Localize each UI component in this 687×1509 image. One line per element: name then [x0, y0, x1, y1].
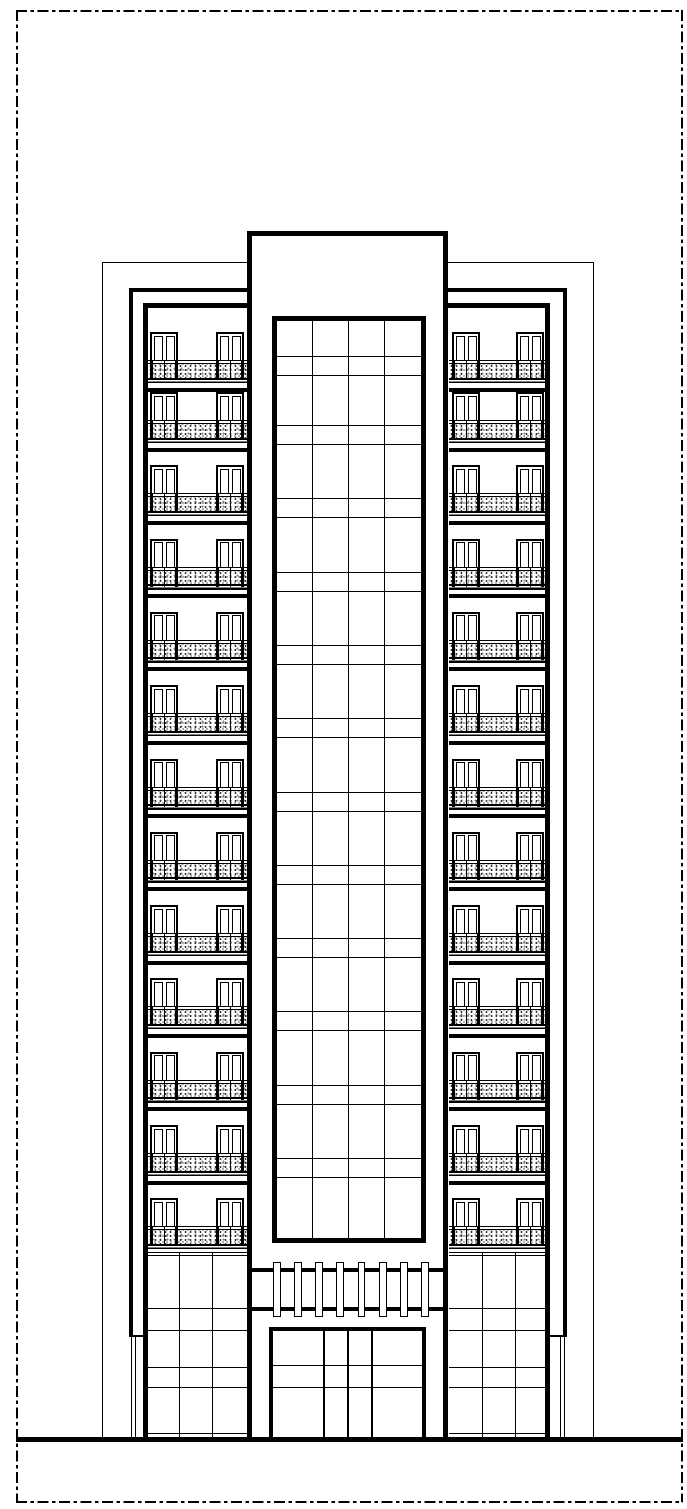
railing-post-thin: [466, 640, 467, 660]
railing-post-thin: [530, 787, 531, 807]
railing-post-bold: [452, 1080, 455, 1100]
railing-post-bold: [541, 787, 544, 807]
railing-post-bold: [150, 860, 153, 880]
railing-bottom-rail: [449, 1097, 545, 1103]
railing-post-bold: [150, 567, 153, 587]
floor-slab-line: [148, 741, 247, 745]
railing-post-bold: [452, 860, 455, 880]
railing-post-bold: [452, 1006, 455, 1026]
floor-row: [148, 612, 247, 674]
floor-slab-line: [449, 1034, 545, 1038]
railing-post-bold: [477, 360, 480, 380]
balcony-railing: [449, 1153, 545, 1176]
railing-post-thin: [164, 493, 165, 513]
railing-post-thin: [164, 1226, 165, 1246]
railing-post-bold: [175, 787, 178, 807]
railing-post-bold: [175, 1006, 178, 1026]
railing-stipple-panel: [449, 791, 545, 805]
railing-bottom-rail: [449, 1024, 545, 1030]
podium-horizontal-line: [449, 1367, 545, 1368]
right-wing: [449, 0, 545, 1509]
railing-post-bold: [516, 567, 519, 587]
railing-post-bold: [175, 360, 178, 380]
railing-post-bold: [541, 933, 544, 953]
railing-post-bold: [241, 713, 244, 733]
railing-post-thin: [466, 1226, 467, 1246]
railing-post-thin: [530, 1226, 531, 1246]
podium-vertical-line: [482, 1252, 483, 1437]
railing-post-bold: [150, 1226, 153, 1246]
colonnade-post: [273, 1262, 281, 1317]
left-wall-extension: [131, 1337, 136, 1437]
railing-post-bold: [477, 420, 480, 440]
railing-post-bold: [175, 567, 178, 587]
railing-post-bold: [241, 1080, 244, 1100]
railing-post-bold: [541, 420, 544, 440]
curtain-spandrel-band: [277, 1158, 421, 1178]
railing-post-bold: [241, 640, 244, 660]
railing-post-thin: [164, 787, 165, 807]
curtain-spandrel-band: [277, 572, 421, 592]
railing-post-bold: [150, 1080, 153, 1100]
floor-slab-line: [148, 1181, 247, 1185]
railing-post-thin: [466, 1080, 467, 1100]
railing-post-bold: [452, 1153, 455, 1173]
railing-post-bold: [216, 640, 219, 660]
balcony-railing: [148, 713, 247, 736]
floor-slab-line: [148, 521, 247, 525]
railing-bottom-rail: [449, 1171, 545, 1177]
podium-horizontal-line: [148, 1252, 247, 1253]
railing-post-bold: [216, 1006, 219, 1026]
railing-post-thin: [466, 360, 467, 380]
floor-slab-line: [449, 741, 545, 745]
floor-slab-line: [148, 814, 247, 818]
railing-post-thin: [230, 1153, 231, 1173]
railing-post-bold: [516, 933, 519, 953]
podium-horizontal-line: [449, 1387, 545, 1388]
railing-post-bold: [477, 933, 480, 953]
podium-horizontal-line: [449, 1252, 545, 1253]
railing-post-thin: [164, 1006, 165, 1026]
colonnade-post: [400, 1262, 408, 1317]
railing-post-thin: [164, 1080, 165, 1100]
railing-post-bold: [150, 1006, 153, 1026]
railing-post-thin: [230, 933, 231, 953]
railing-post-bold: [175, 860, 178, 880]
railing-post-bold: [516, 1006, 519, 1026]
railing-stipple-panel: [449, 644, 545, 658]
railing-post-thin: [530, 713, 531, 733]
railing-post-thin: [530, 1080, 531, 1100]
podium-horizontal-line: [449, 1255, 545, 1256]
floor-row: [449, 539, 545, 601]
curtain-spandrel-band: [277, 498, 421, 518]
curtain-wall: [272, 316, 426, 1244]
railing-post-bold: [216, 360, 219, 380]
railing-post-bold: [216, 713, 219, 733]
railing-post-thin: [230, 420, 231, 440]
railing-post-thin: [230, 567, 231, 587]
railing-post-thin: [466, 1006, 467, 1026]
balcony-railing: [449, 567, 545, 590]
railing-post-thin: [164, 1153, 165, 1173]
podium-horizontal-line: [148, 1330, 247, 1331]
floor-row: [148, 465, 247, 527]
curtain-spandrel-band: [277, 938, 421, 958]
floor-slab-line: [148, 1034, 247, 1038]
balcony-railing: [148, 1006, 247, 1029]
porch-upper-beam: [252, 1268, 444, 1272]
podium-horizontal-line: [148, 1255, 247, 1256]
railing-post-bold: [241, 1006, 244, 1026]
railing-post-thin: [530, 1006, 531, 1026]
railing-post-thin: [530, 360, 531, 380]
floor-slab-line: [148, 1107, 247, 1111]
balcony-railing: [148, 1080, 247, 1103]
railing-post-bold: [452, 640, 455, 660]
railing-post-bold: [477, 860, 480, 880]
railing-stipple-panel: [449, 364, 545, 378]
podium-vertical-line: [212, 1252, 213, 1437]
floor-slab-line: [449, 388, 545, 392]
balcony-railing: [449, 860, 545, 883]
door-transom: [273, 1387, 422, 1388]
balcony-railing: [449, 713, 545, 736]
railing-post-bold: [541, 360, 544, 380]
railing-post-bold: [477, 1226, 480, 1246]
railing-post-thin: [164, 567, 165, 587]
left-wing: [148, 0, 247, 1509]
railing-post-bold: [241, 493, 244, 513]
railing-post-bold: [516, 1153, 519, 1173]
floor-row: [148, 905, 247, 967]
balcony-railing: [148, 1226, 247, 1249]
railing-bottom-rail: [449, 951, 545, 957]
railing-post-thin: [164, 713, 165, 733]
railing-post-bold: [541, 1153, 544, 1173]
balcony-railing: [148, 567, 247, 590]
railing-stipple-panel: [449, 864, 545, 878]
railing-post-bold: [216, 493, 219, 513]
railing-post-bold: [477, 1153, 480, 1173]
balcony-railing: [449, 933, 545, 956]
railing-post-thin: [530, 567, 531, 587]
railing-post-thin: [530, 420, 531, 440]
railing-post-bold: [150, 1153, 153, 1173]
railing-post-thin: [230, 713, 231, 733]
railing-post-bold: [516, 787, 519, 807]
floor-row: [148, 1125, 247, 1187]
curtain-spandrel-band: [277, 792, 421, 812]
railing-post-bold: [175, 1153, 178, 1173]
podium-horizontal-line: [449, 1308, 545, 1309]
floor-row: [449, 759, 545, 821]
railing-post-bold: [452, 713, 455, 733]
floor-row: [449, 1198, 545, 1260]
railing-stipple-panel: [449, 1157, 545, 1171]
railing-post-bold: [216, 860, 219, 880]
railing-post-thin: [466, 1153, 467, 1173]
railing-stipple-panel: [449, 424, 545, 438]
railing-post-bold: [150, 493, 153, 513]
floor-slab-line: [449, 1181, 545, 1185]
railing-post-bold: [452, 360, 455, 380]
railing-post-bold: [216, 567, 219, 587]
door-mullion: [323, 1331, 324, 1437]
railing-post-bold: [241, 860, 244, 880]
railing-post-bold: [241, 1153, 244, 1173]
railing-bottom-rail: [449, 511, 545, 517]
door-mullion: [371, 1331, 372, 1437]
floor-slab-line: [148, 887, 247, 891]
railing-stipple-panel: [449, 717, 545, 731]
floor-row: [148, 539, 247, 601]
balcony-railing: [148, 860, 247, 883]
railing-post-thin: [164, 933, 165, 953]
podium-horizontal-line: [148, 1387, 247, 1388]
balcony-railing: [449, 360, 545, 383]
colonnade-post: [336, 1262, 344, 1317]
railing-post-bold: [541, 640, 544, 660]
railing-stipple-panel: [449, 1084, 545, 1098]
railing-post-bold: [477, 640, 480, 660]
balcony-railing: [148, 787, 247, 810]
railing-bottom-rail: [449, 877, 545, 883]
floor-slab-line: [148, 388, 247, 392]
railing-post-bold: [516, 420, 519, 440]
balcony-railing: [148, 640, 247, 663]
balcony-railing: [148, 1153, 247, 1176]
railing-post-bold: [150, 713, 153, 733]
railing-post-bold: [241, 420, 244, 440]
railing-post-bold: [541, 860, 544, 880]
railing-post-bold: [175, 1226, 178, 1246]
floor-slab-line: [449, 448, 545, 452]
podium-vertical-line: [179, 1252, 180, 1437]
podium-horizontal-line: [148, 1367, 247, 1368]
railing-stipple-panel: [449, 1230, 545, 1244]
balcony-railing: [449, 493, 545, 516]
floor-row: [449, 1125, 545, 1187]
balcony-railing: [449, 1226, 545, 1249]
railing-post-thin: [466, 713, 467, 733]
railing-bottom-rail: [449, 584, 545, 590]
railing-post-bold: [241, 1226, 244, 1246]
floor-row: [449, 392, 545, 454]
podium-horizontal-line: [148, 1433, 247, 1434]
floor-row: [148, 759, 247, 821]
railing-post-thin: [466, 860, 467, 880]
railing-stipple-panel: [449, 571, 545, 585]
railing-post-bold: [175, 933, 178, 953]
railing-post-thin: [164, 420, 165, 440]
railing-post-thin: [230, 1080, 231, 1100]
floor-row: [449, 978, 545, 1040]
floor-row: [449, 685, 545, 747]
floor-row: [148, 332, 247, 394]
railing-post-thin: [164, 640, 165, 660]
railing-post-thin: [164, 360, 165, 380]
entrance-door: [269, 1327, 426, 1437]
railing-post-bold: [150, 933, 153, 953]
balcony-railing: [148, 933, 247, 956]
floor-row: [449, 332, 545, 394]
railing-post-bold: [452, 493, 455, 513]
railing-post-bold: [452, 787, 455, 807]
railing-post-bold: [452, 420, 455, 440]
balcony-railing: [449, 640, 545, 663]
railing-post-bold: [541, 1226, 544, 1246]
floor-slab-line: [148, 594, 247, 598]
railing-post-bold: [477, 713, 480, 733]
railing-post-bold: [477, 567, 480, 587]
railing-post-thin: [230, 1226, 231, 1246]
floor-slab-line: [449, 1107, 545, 1111]
railing-post-bold: [477, 493, 480, 513]
railing-post-bold: [541, 493, 544, 513]
railing-post-thin: [530, 860, 531, 880]
railing-post-bold: [175, 493, 178, 513]
floor-slab-line: [148, 448, 247, 452]
railing-post-bold: [216, 1080, 219, 1100]
balcony-railing: [148, 493, 247, 516]
podium-horizontal-line: [148, 1308, 247, 1309]
railing-post-bold: [241, 567, 244, 587]
drawing-sheet: [0, 0, 687, 1509]
railing-post-thin: [530, 493, 531, 513]
floor-row: [148, 978, 247, 1040]
railing-post-bold: [541, 1006, 544, 1026]
railing-post-bold: [516, 713, 519, 733]
railing-post-bold: [150, 420, 153, 440]
railing-post-thin: [466, 493, 467, 513]
floor-row: [148, 685, 247, 747]
border-left: [16, 10, 18, 1502]
balcony-railing: [449, 1006, 545, 1029]
balcony-railing: [449, 420, 545, 443]
podium-horizontal-line: [449, 1433, 545, 1434]
curtain-spandrel-band: [277, 1011, 421, 1031]
floor-row: [449, 832, 545, 894]
railing-post-bold: [452, 567, 455, 587]
railing-post-bold: [541, 713, 544, 733]
ground-line: [16, 1437, 683, 1443]
curtain-spandrel-band: [277, 718, 421, 738]
railing-post-bold: [516, 640, 519, 660]
floor-row: [148, 832, 247, 894]
floor-row: [449, 612, 545, 674]
door-mullion: [347, 1331, 348, 1437]
floor-row: [449, 905, 545, 967]
right-wall-step-line: [548, 1335, 567, 1337]
curtain-spandrel-band: [277, 425, 421, 445]
railing-post-thin: [230, 860, 231, 880]
railing-post-bold: [150, 360, 153, 380]
railing-post-bold: [241, 360, 244, 380]
border-top: [16, 10, 683, 12]
railing-post-bold: [516, 1226, 519, 1246]
railing-bottom-rail: [449, 438, 545, 444]
floor-slab-line: [148, 961, 247, 965]
railing-post-bold: [175, 640, 178, 660]
border-right: [681, 10, 683, 1502]
railing-post-thin: [530, 640, 531, 660]
curtain-spandrel-band: [277, 1085, 421, 1105]
railing-post-bold: [516, 860, 519, 880]
balcony-railing: [449, 787, 545, 810]
podium-horizontal-line: [449, 1330, 545, 1331]
railing-bottom-rail: [449, 378, 545, 384]
railing-post-bold: [452, 933, 455, 953]
colonnade-post: [358, 1262, 366, 1317]
floor-row: [148, 1198, 247, 1260]
railing-post-thin: [466, 787, 467, 807]
right-wall-extension: [560, 1337, 565, 1437]
colonnade-post: [421, 1262, 429, 1317]
balcony-railing: [148, 360, 247, 383]
railing-post-bold: [175, 713, 178, 733]
railing-post-bold: [216, 420, 219, 440]
floor-row: [148, 1052, 247, 1114]
railing-post-thin: [164, 860, 165, 880]
railing-post-bold: [516, 1080, 519, 1100]
railing-post-bold: [452, 1226, 455, 1246]
railing-stipple-panel: [449, 937, 545, 951]
floor-slab-line: [449, 814, 545, 818]
floor-row: [449, 1052, 545, 1114]
floor-slab-line: [449, 594, 545, 598]
railing-bottom-rail: [449, 657, 545, 663]
railing-post-thin: [230, 640, 231, 660]
railing-bottom-rail: [449, 731, 545, 737]
railing-post-thin: [466, 933, 467, 953]
railing-post-bold: [477, 1080, 480, 1100]
balcony-railing: [449, 1080, 545, 1103]
floor-slab-line: [449, 887, 545, 891]
railing-bottom-rail: [449, 1244, 545, 1250]
railing-post-bold: [477, 1006, 480, 1026]
railing-post-bold: [175, 420, 178, 440]
floor-row: [449, 465, 545, 527]
floor-slab-line: [449, 961, 545, 965]
railing-post-bold: [241, 933, 244, 953]
railing-post-thin: [466, 567, 467, 587]
curtain-spandrel-band: [277, 645, 421, 665]
balcony-railing: [148, 420, 247, 443]
railing-post-thin: [530, 933, 531, 953]
podium-vertical-line: [515, 1252, 516, 1437]
railing-post-bold: [541, 567, 544, 587]
border-bottom: [16, 1501, 683, 1503]
railing-post-thin: [530, 1153, 531, 1173]
railing-post-bold: [477, 787, 480, 807]
railing-post-bold: [541, 1080, 544, 1100]
railing-stipple-panel: [449, 497, 545, 511]
floor-slab-line: [449, 521, 545, 525]
railing-post-thin: [466, 420, 467, 440]
railing-post-thin: [230, 787, 231, 807]
railing-post-thin: [230, 360, 231, 380]
railing-post-bold: [150, 787, 153, 807]
railing-post-bold: [216, 933, 219, 953]
railing-post-bold: [516, 360, 519, 380]
railing-post-thin: [230, 1006, 231, 1026]
floor-slab-line: [449, 667, 545, 671]
railing-post-bold: [150, 640, 153, 660]
curtain-spandrel-band: [277, 356, 421, 376]
door-transom: [273, 1365, 422, 1366]
